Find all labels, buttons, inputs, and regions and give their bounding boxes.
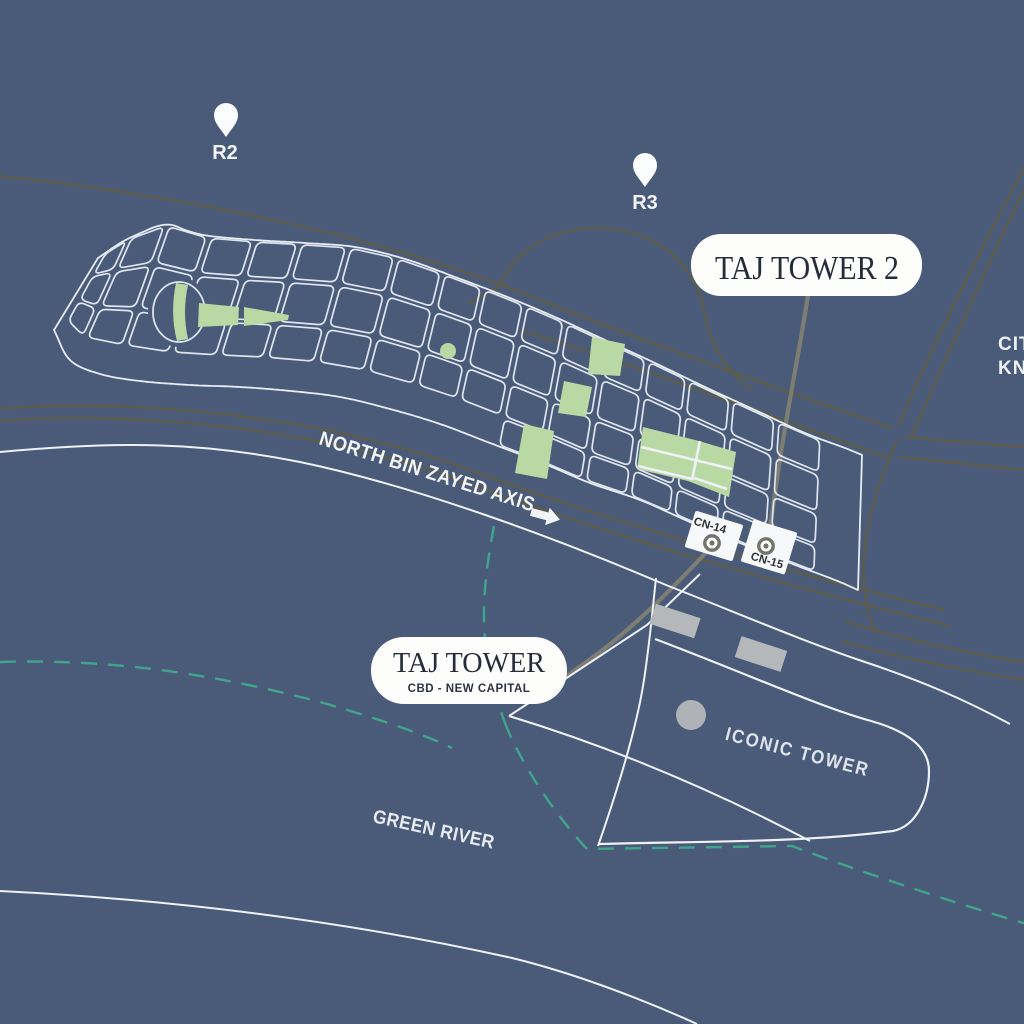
svg-text:R2: R2 (212, 142, 238, 164)
svg-text:TAJ TOWER 2: TAJ TOWER 2 (715, 250, 899, 287)
svg-text:R3: R3 (632, 192, 658, 214)
svg-text:KNO: KNO (998, 358, 1024, 379)
svg-text:CBD - NEW CAPITAL: CBD - NEW CAPITAL (408, 683, 531, 695)
svg-text:TAJ TOWER: TAJ TOWER (393, 648, 545, 679)
svg-text:CITY: CITY (998, 334, 1024, 355)
